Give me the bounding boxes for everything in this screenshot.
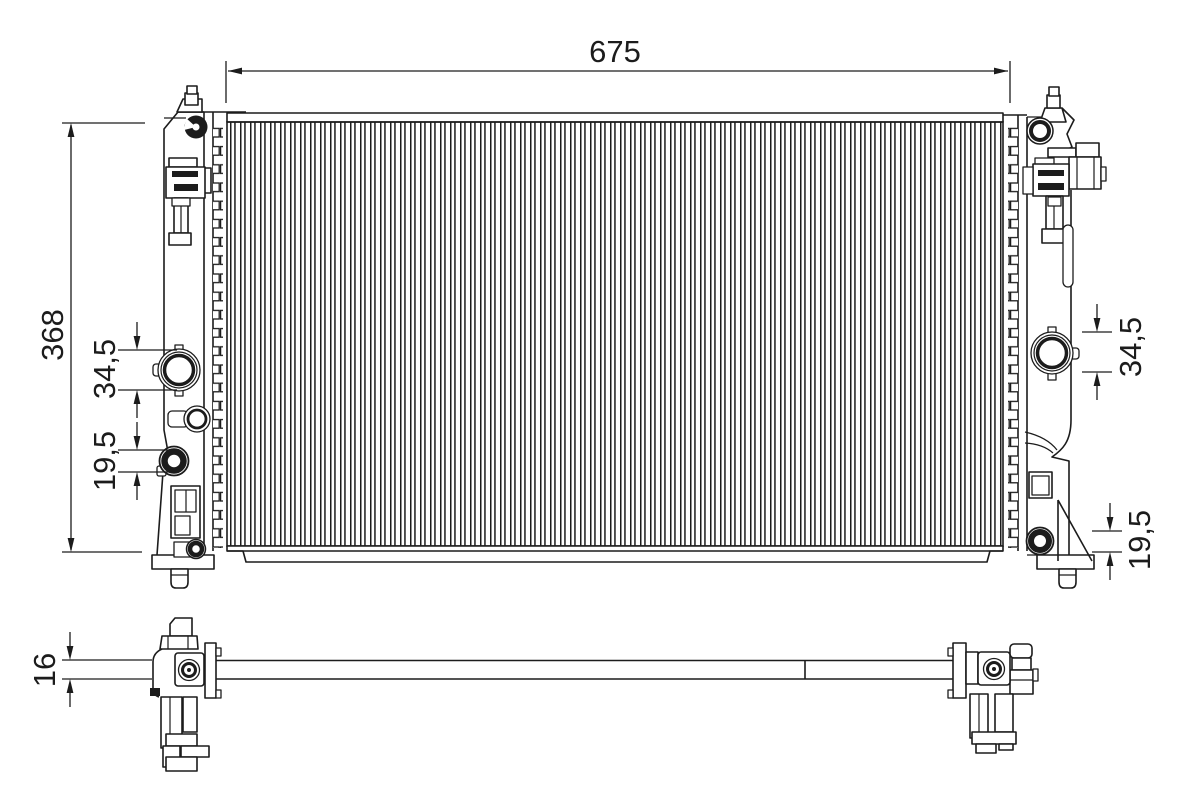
radiator-technical-drawing: 675 368 34,5 19,5 bbox=[0, 0, 1200, 800]
right-crimp-teeth bbox=[1008, 122, 1018, 548]
bottom-view: 16 bbox=[27, 618, 1038, 771]
dim-height-label: 368 bbox=[35, 309, 70, 361]
dim-thickness-label: 16 bbox=[27, 653, 62, 687]
left-lower-bracket bbox=[171, 486, 200, 538]
dim-height-arrow-top bbox=[68, 123, 75, 137]
dim-right-upper-port: 34,5 bbox=[1082, 304, 1148, 400]
core-bottom-plate bbox=[227, 551, 1003, 562]
right-tank bbox=[1023, 87, 1106, 588]
right-baffle bbox=[1025, 432, 1057, 453]
left-bracket-profile bbox=[150, 618, 221, 771]
core-bottom-band bbox=[227, 546, 1003, 551]
left-middle-port bbox=[168, 406, 210, 432]
left-bleed-valve bbox=[184, 116, 208, 139]
right-tank-foot bbox=[1037, 555, 1094, 569]
right-bracket-profile bbox=[948, 643, 1038, 753]
right-gusset-triangle bbox=[1058, 500, 1092, 561]
left-top-pin bbox=[185, 93, 198, 105]
dim-height-arrow-bottom bbox=[68, 538, 75, 552]
dim-width-label: 675 bbox=[589, 34, 641, 69]
dim-width: 675 bbox=[226, 34, 1010, 103]
dim-left-lower-port-label: 19,5 bbox=[87, 431, 122, 491]
left-bottom-pin bbox=[171, 569, 188, 588]
dim-thickness-extension-lines bbox=[62, 660, 152, 679]
radiator-core bbox=[178, 112, 1027, 562]
core-profile-band bbox=[215, 661, 953, 680]
dim-right-upper-port-label: 34,5 bbox=[1113, 317, 1148, 377]
right-bottom-pin bbox=[1059, 569, 1076, 588]
left-bottom-port bbox=[174, 540, 206, 559]
dim-right-lower-port: 19,5 bbox=[1092, 503, 1157, 580]
dim-thickness: 16 bbox=[27, 632, 152, 707]
core-fins bbox=[227, 122, 1003, 546]
dim-width-arrow-right bbox=[994, 68, 1008, 75]
right-mid-bracket bbox=[1029, 472, 1052, 498]
right-side-slot bbox=[1063, 225, 1073, 287]
dim-left-upper-port-label: 34,5 bbox=[87, 339, 122, 399]
right-lower-port bbox=[1027, 528, 1054, 555]
core-top-plate bbox=[227, 113, 1003, 122]
dim-width-arrow-left bbox=[228, 68, 242, 75]
right-filler-ring bbox=[1027, 118, 1053, 144]
front-view: 675 368 34,5 19,5 bbox=[35, 34, 1157, 588]
dim-left-lower-port: 19,5 bbox=[87, 422, 170, 500]
right-upper-port bbox=[1031, 327, 1079, 380]
right-top-pin bbox=[1047, 95, 1060, 108]
drawing-canvas: 675 368 34,5 19,5 bbox=[0, 0, 1200, 800]
left-crimp-teeth bbox=[213, 122, 223, 548]
left-upper-port bbox=[153, 345, 200, 396]
dim-right-lower-port-label: 19,5 bbox=[1122, 510, 1157, 570]
